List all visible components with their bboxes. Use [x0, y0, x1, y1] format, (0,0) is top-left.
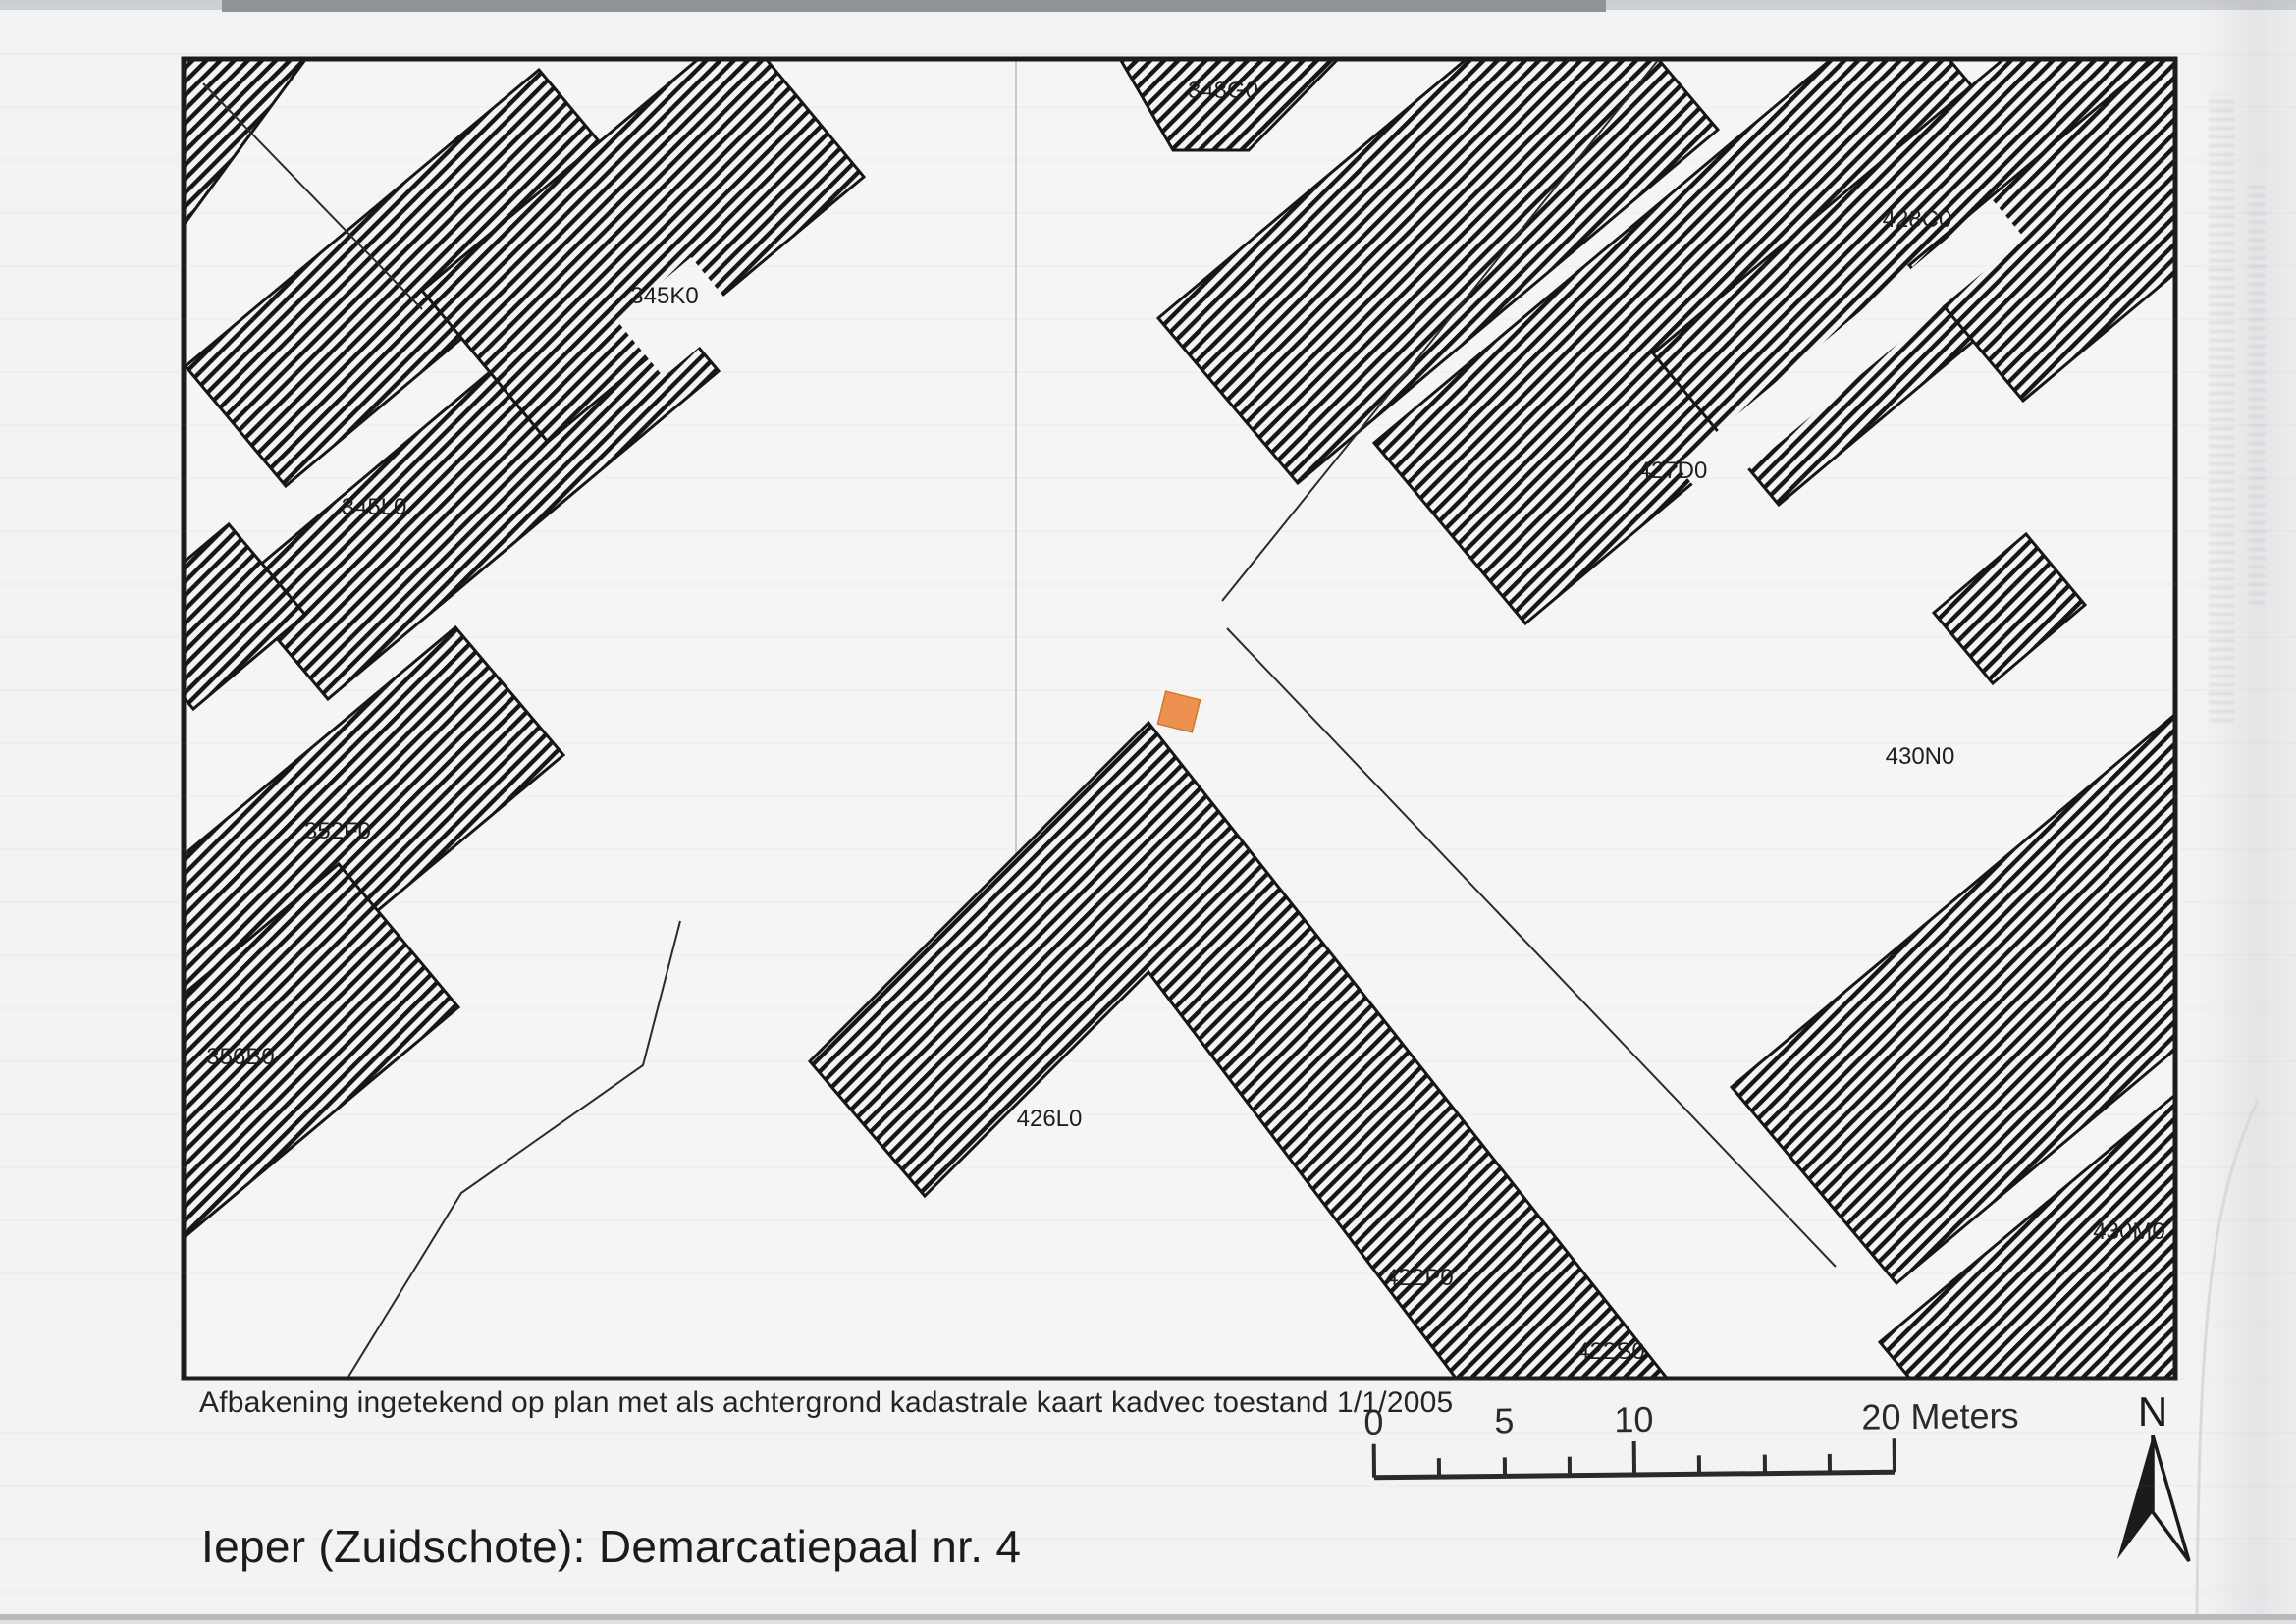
scale-bar: 0 5 10 20 Meters	[1363, 1395, 2019, 1478]
scanned-cadastral-document: 357D0	[0, 0, 2296, 1624]
parcel-label: 427D0	[1638, 458, 1708, 484]
parcel-label: 345K0	[630, 283, 698, 309]
page-title: Ieper (Zuidschote): Demarcatiepaal nr. 4	[201, 1520, 1021, 1573]
north-arrow-label: N	[2138, 1388, 2167, 1435]
parcel-label: 430M0	[2093, 1218, 2164, 1245]
scale-label-5: 5	[1494, 1400, 1514, 1440]
paper-crease	[2197, 1100, 2258, 1624]
parcel-label: 422P0	[1385, 1265, 1453, 1291]
north-arrow: N	[2117, 1388, 2189, 1561]
scale-label-20-meters: 20 Meters	[1861, 1395, 2018, 1437]
parcel-label: 428C0	[1883, 206, 1952, 233]
parcel-label: 430N0	[1886, 743, 1955, 770]
cadastral-map: 357D0	[0, 0, 2296, 1624]
parcel-label: 352F0	[304, 818, 371, 844]
scanner-edge-artifact	[0, 1620, 2296, 1624]
map-caption: Afbakening ingetekend op plan met als ac…	[199, 1386, 1453, 1420]
scale-label-10: 10	[1614, 1399, 1653, 1439]
north-arrow-left-half	[2117, 1435, 2153, 1559]
parcel-label: 345L0	[342, 494, 407, 520]
parcel-label: 348G0	[1188, 78, 1258, 104]
parcel-label: 422S0	[1576, 1338, 1644, 1365]
parcel-label: 356B0	[206, 1044, 274, 1070]
parcel-label: 426L0	[1017, 1106, 1083, 1132]
north-arrow-right-half	[2153, 1435, 2189, 1561]
